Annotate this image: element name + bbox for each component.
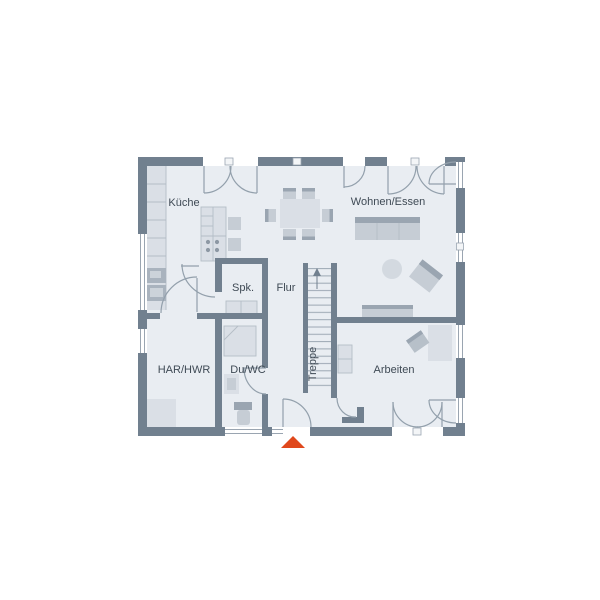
frame-marker (293, 158, 301, 165)
frame-marker (413, 428, 421, 435)
frame-marker (411, 158, 419, 165)
island-chair (228, 217, 241, 230)
room-label-treppe: Treppe (307, 347, 319, 381)
kitchen-island (201, 207, 226, 261)
room-label-wohnen-essen: Wohnen/Essen (351, 196, 425, 208)
entrance-door-opening (283, 427, 310, 436)
window (138, 329, 147, 353)
window (456, 325, 465, 358)
sofa (355, 217, 420, 240)
office-shelf (338, 345, 352, 373)
desk (428, 325, 452, 361)
room-label-arbeiten: Arbeiten (374, 364, 415, 376)
utility-unit (147, 399, 176, 427)
door-opening (456, 398, 465, 423)
room-label-flur: Flur (277, 282, 296, 294)
window (225, 427, 262, 436)
room-label-har-hwr: HAR/HWR (158, 364, 211, 376)
dining-table (280, 199, 320, 228)
door-opening (456, 162, 465, 188)
entrance-sidelight (272, 427, 283, 436)
island-chair (228, 238, 241, 251)
frame-marker (225, 158, 233, 165)
round-rug (382, 259, 402, 279)
window (456, 233, 465, 262)
sideboard (362, 305, 413, 317)
room-label-spk: Spk. (232, 282, 254, 294)
room-label-du-wc: Du/WC (230, 364, 266, 376)
room-label-kueche: Küche (168, 197, 199, 209)
shower (224, 326, 256, 356)
kitchen-counter (147, 166, 166, 310)
window (138, 234, 147, 310)
single-door-opening (343, 157, 365, 166)
floorplan-canvas: Küche Wohnen/Essen Spk. Flur Treppe HAR/… (0, 0, 600, 600)
sink (224, 374, 239, 394)
